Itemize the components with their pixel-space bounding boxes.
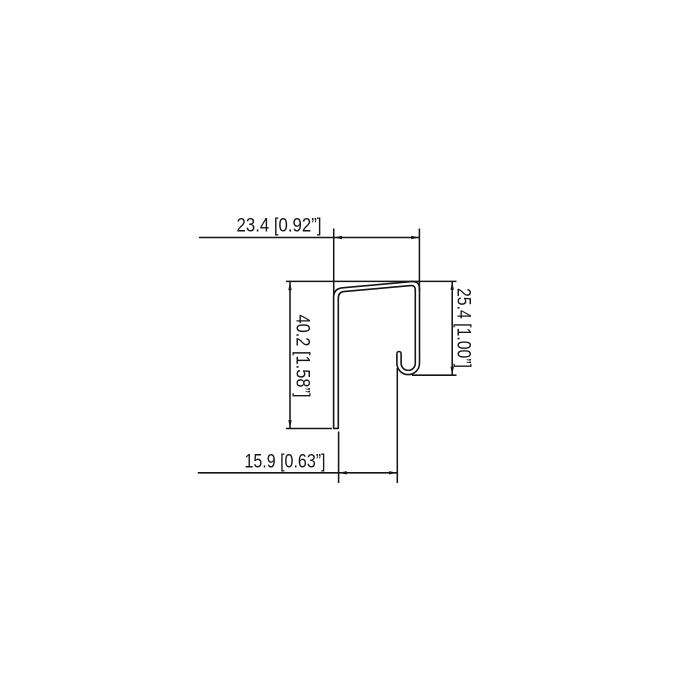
svg-text:23.4 [0.92”]: 23.4 [0.92”]: [237, 216, 322, 237]
svg-text:15.9 [0.63”]: 15.9 [0.63”]: [245, 452, 326, 473]
svg-text:40.2 [1.58”]: 40.2 [1.58”]: [292, 315, 313, 398]
svg-text:25.4 [1.00”]: 25.4 [1.00”]: [453, 288, 474, 368]
